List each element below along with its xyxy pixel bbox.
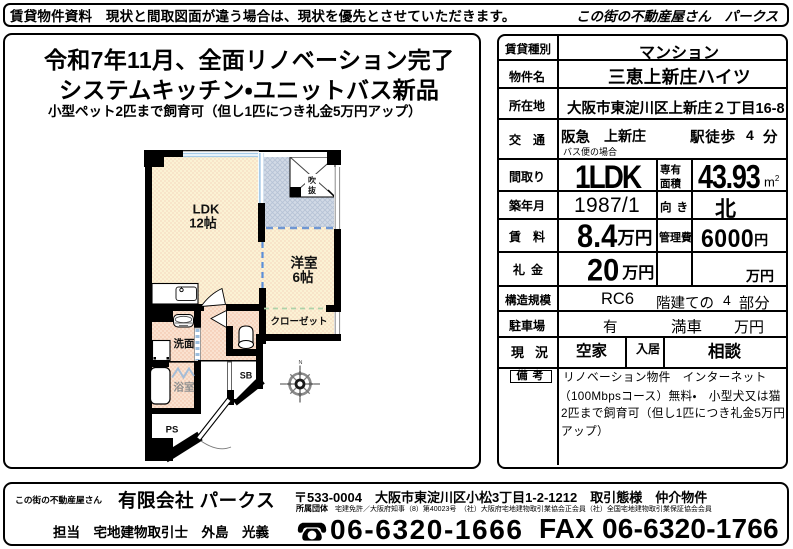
svg-text:SB: SB (240, 371, 253, 381)
svg-text:LDK: LDK (193, 202, 220, 217)
svg-text:PS: PS (166, 425, 179, 436)
svg-text:12帖: 12帖 (189, 216, 216, 231)
svg-text:浴室: 浴室 (174, 381, 195, 394)
svg-text:クローゼット: クローゼット (270, 316, 327, 328)
svg-text:洋室: 洋室 (291, 255, 318, 271)
svg-text:N: N (299, 360, 303, 366)
svg-text:6帖: 6帖 (292, 269, 314, 285)
svg-text:抜: 抜 (308, 185, 317, 195)
svg-text:洗面: 洗面 (174, 337, 195, 350)
svg-text:吹: 吹 (308, 175, 316, 185)
